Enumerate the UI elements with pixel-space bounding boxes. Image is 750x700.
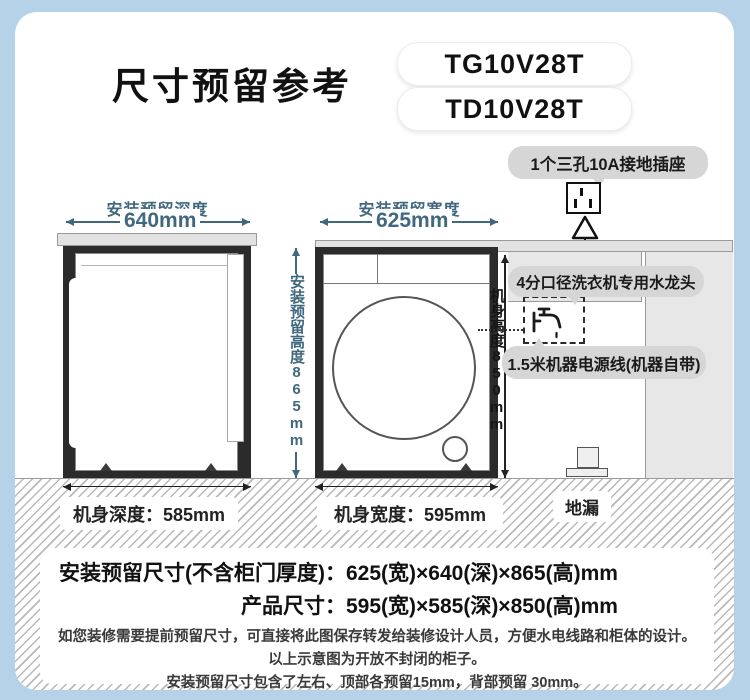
machine-foot	[100, 463, 112, 471]
power-cord-callout: 1.5米机器电源线(机器自带)	[502, 346, 706, 379]
front-clearance-value: 625mm	[372, 209, 452, 233]
model-badge-1: TG10V28T	[397, 42, 632, 86]
arrow-left-icon	[63, 483, 71, 491]
model-badge-2: TD10V28T	[397, 87, 632, 131]
front-body-width-label: 机身宽度：595mm	[317, 497, 503, 530]
dimension-summary: 安装预留尺寸(不含柜门厚度)： 625(宽)×640(深)×865(高)mm 产…	[40, 557, 714, 620]
control-panel-line	[323, 283, 490, 284]
model-name: TD10V28T	[445, 94, 584, 125]
front-body-dimension-line	[315, 486, 498, 487]
arrow-right-icon	[490, 218, 498, 226]
socket-slot-top	[580, 188, 583, 196]
socket-slot-left	[574, 199, 577, 208]
product-size-label: 产品尺寸：	[40, 590, 346, 620]
machine-foot	[336, 463, 348, 471]
drum-door-circle	[332, 296, 476, 440]
arrow-down-icon	[501, 470, 509, 478]
install-size-value: 625(宽)×640(深)×865(高)mm	[346, 557, 714, 587]
note-line: 安装预留尺寸包含了左右、顶部各预留15mm，背部预留 30mm。	[40, 672, 714, 695]
faucet-callout-tail	[568, 295, 582, 305]
filter-access-circle	[442, 436, 468, 462]
socket-callout: 1个三孔10A接地插座	[508, 146, 708, 179]
water-inlet-dotted-line	[478, 329, 523, 331]
side-body-dimension-line	[63, 486, 251, 487]
detergent-drawer-divider	[377, 254, 378, 283]
side-machine-body	[75, 253, 238, 471]
drain-label-text: 地漏	[565, 494, 599, 519]
installation-notes: 如您装修需要提前预留尺寸，可直接将此图保存转发给装修设计人员，方便水电线路和柜体…	[40, 626, 714, 695]
arrow-right-icon	[490, 483, 498, 491]
arrow-down-icon	[292, 470, 300, 478]
model-name: TG10V28T	[444, 49, 584, 80]
side-body-depth-label: 机身深度：585mm	[60, 497, 238, 530]
socket-icon	[566, 182, 601, 214]
faucet-callout: 4分口径洗衣机专用水龙头	[508, 266, 704, 297]
drain-icon	[577, 447, 599, 468]
arrow-left-icon	[315, 483, 323, 491]
side-body-depth-text: 机身深度：585mm	[73, 501, 225, 527]
drain-label: 地漏	[553, 491, 611, 522]
note-line: 如您装修需要提前预留尺寸，可直接将此图保存转发给装修设计人员，方便水电线路和柜体…	[40, 626, 714, 649]
side-clearance-value: 640mm	[120, 209, 200, 233]
side-countertop	[57, 233, 257, 246]
front-body-width-text: 机身宽度：595mm	[334, 501, 486, 527]
socket-callout-label: 1个三孔10A接地插座	[531, 151, 686, 175]
arrow-left-icon	[66, 218, 74, 226]
faucet-callout-label: 4分口径洗衣机专用水龙头	[516, 271, 695, 293]
arrow-up-icon	[501, 255, 509, 263]
drain-base	[566, 468, 608, 477]
product-size-value: 595(宽)×585(深)×850(高)mm	[346, 590, 714, 620]
arrow-up-icon	[292, 248, 300, 256]
arrow-right-icon	[243, 483, 251, 491]
page-title: 尺寸预留参考	[112, 56, 352, 110]
faucet-icon	[528, 300, 570, 340]
side-door-bulge	[69, 278, 82, 448]
arrow-left-icon	[320, 218, 328, 226]
note-line: 以上示意图为开放不封闭的柜子。	[40, 649, 714, 672]
side-back-panel	[227, 254, 244, 442]
machine-foot	[205, 463, 217, 471]
arrow-right-icon	[242, 218, 250, 226]
install-size-label: 安装预留尺寸(不含柜门厚度)：	[40, 557, 346, 587]
summary-panel: 安装预留尺寸(不含柜门厚度)： 625(宽)×640(深)×865(高)mm 产…	[40, 548, 714, 684]
plug-icon	[570, 214, 600, 241]
height-clearance-label: 安装预留高度865mm	[286, 274, 306, 452]
side-machine-seam	[81, 265, 233, 266]
socket-slot-right	[589, 199, 592, 208]
power-cord-callout-label: 1.5米机器电源线(机器自带)	[508, 351, 701, 375]
machine-foot	[460, 463, 472, 471]
page: 尺寸预留参考 TG10V28T TD10V28T 1个三孔10A接地插座 安装预…	[0, 0, 750, 700]
